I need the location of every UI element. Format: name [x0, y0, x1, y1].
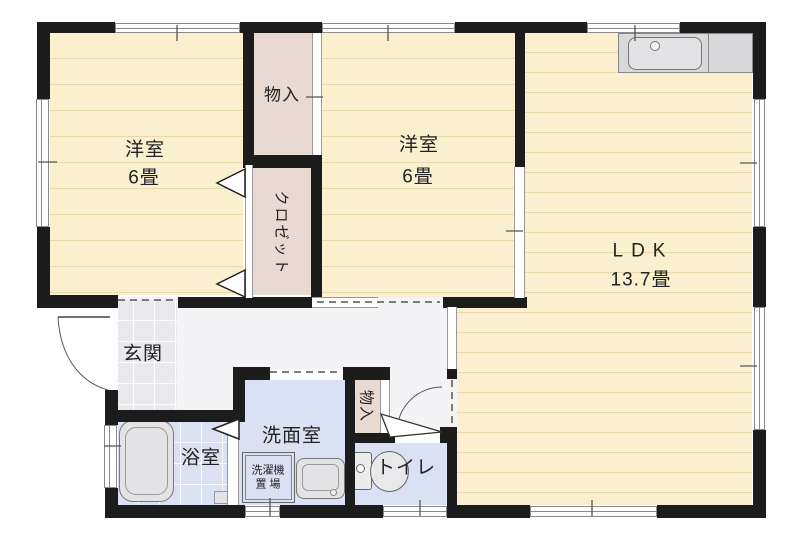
- bathroom-label: 浴室: [181, 449, 221, 468]
- ldk-label: LDK: [613, 242, 674, 261]
- closet-door-chevron: [217, 270, 245, 297]
- toilet-door-leaf: [381, 414, 442, 437]
- western-room-1-size: 6畳: [128, 169, 160, 188]
- ldk-size: 13.7畳: [611, 271, 672, 290]
- closet-door-chevron: [217, 169, 245, 197]
- entrance-label: 玄関: [123, 345, 163, 364]
- toilet-label: トイレ: [376, 459, 436, 478]
- western-room-1-label: 洋室: [125, 141, 165, 160]
- door-swing-overlay: [0, 0, 800, 534]
- floor-plan: 洋室 6畳 洋室 6畳 LDK 13.7畳 物入 クロゼット 玄関 浴室 洗面室…: [0, 0, 800, 534]
- laundry-label-line1: 洗濯機: [252, 466, 285, 477]
- front-door-arc: [58, 317, 108, 390]
- storage-top-label: 物入: [264, 87, 300, 104]
- bathroom-door-chevron: [213, 419, 239, 439]
- storage-hall-label: 物入: [359, 390, 374, 422]
- laundry-label-line2: 置 場: [255, 480, 280, 491]
- western-room-2-size: 6畳: [402, 168, 434, 187]
- western-room-2-label: 洋室: [399, 136, 439, 155]
- washroom-label: 洗面室: [262, 427, 322, 446]
- closet-label: クロゼット: [274, 190, 289, 275]
